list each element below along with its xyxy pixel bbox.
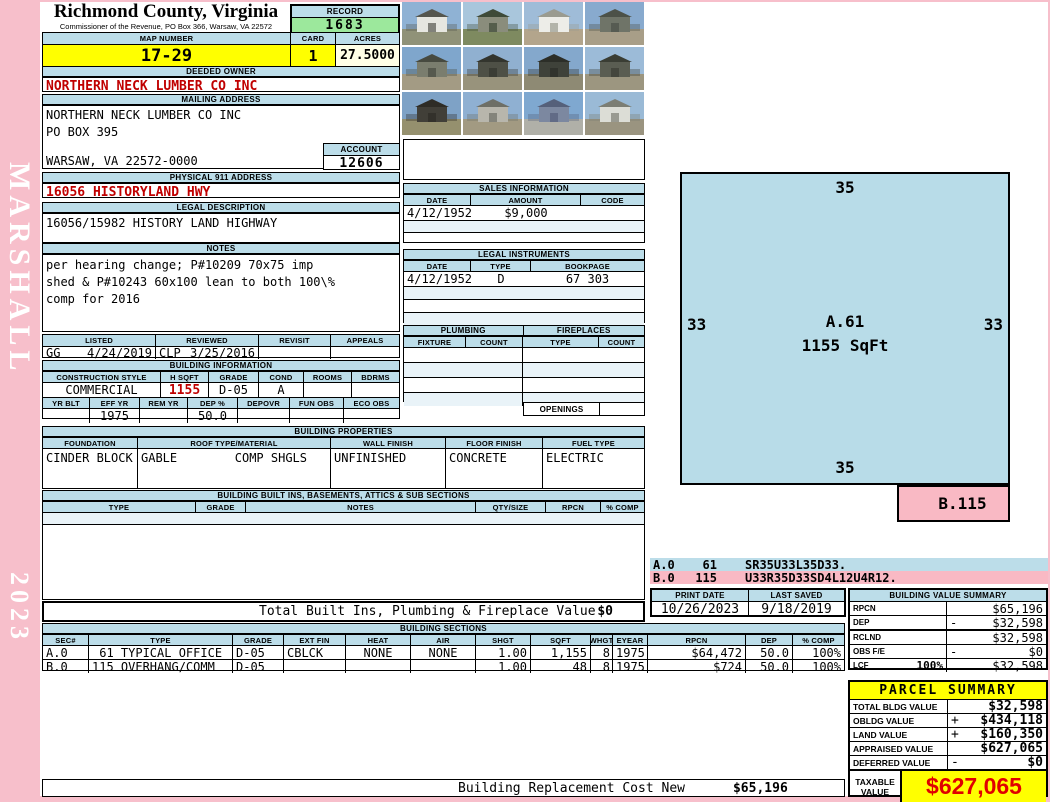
- property-photo: [524, 2, 583, 45]
- col-header: DEP: [746, 635, 793, 645]
- last-saved-header: LAST SAVED: [749, 590, 844, 601]
- ps-label: OBLDG VALUE: [850, 714, 948, 727]
- sqft-cell: 1,155: [531, 646, 591, 659]
- instrument-type: D: [471, 272, 531, 286]
- parcel-summary-header: PARCEL SUMMARY: [850, 682, 1046, 700]
- plumbing-fireplaces-table: FIXTURE COUNT TYPE COUNT: [403, 336, 645, 402]
- rpcn-cell: $64,472: [648, 646, 746, 659]
- sketch-dim-top: 35: [835, 178, 854, 197]
- review-table: LISTED REVIEWED REVISIT APPEALS GG 4/24/…: [42, 334, 400, 358]
- revisit-value: [259, 347, 331, 359]
- property-photo: [585, 92, 644, 135]
- property-record-card: { "county": { "title": "Richmond County,…: [0, 0, 1050, 800]
- vector-path: U33R35D33SD4L12U4R12.: [745, 571, 897, 585]
- legal-description-header: LEGAL DESCRIPTION: [42, 202, 400, 213]
- sales-information-table: DATE AMOUNT CODE 4/12/1952 $9,000: [403, 194, 645, 243]
- sales-empty-row: [404, 233, 644, 244]
- value-summary-row: RCLND $32,598: [850, 631, 1046, 645]
- grade-value: D-05: [209, 383, 259, 397]
- card-header: CARD: [291, 33, 336, 44]
- value-summary-row: LCF 100% $32,598: [850, 659, 1046, 672]
- acres-header: ACRES: [336, 33, 399, 44]
- col-header: GRADE: [209, 372, 259, 382]
- col-header: COND: [259, 372, 304, 382]
- legal-instruments-table: DATE TYPE BOOKPAGE 4/12/1952 D 67 303: [403, 260, 645, 323]
- col-header: FUEL TYPE: [543, 438, 644, 448]
- foundation-value: CINDER BLOCK: [43, 449, 138, 489]
- building-properties-table: FOUNDATION ROOF TYPE/MATERIAL WALL FINIS…: [42, 437, 645, 489]
- ecoobs-value: [344, 409, 399, 423]
- rpcn-cell: $724: [648, 660, 746, 673]
- ps-op: +: [951, 714, 959, 727]
- physical-address-value: 16056 HISTORYLAND HWY: [42, 183, 400, 198]
- vs-value: $0: [1029, 645, 1043, 658]
- card-value: 1: [291, 45, 336, 66]
- col-header: ECO OBS: [344, 398, 399, 408]
- property-photo: [463, 47, 522, 90]
- building-sections-table: SEC# TYPE GRADE EXT FIN HEAT AIR SHGT SQ…: [42, 634, 845, 671]
- sketch-dim-left: 33: [687, 315, 706, 334]
- whgt-cell: 8: [591, 646, 613, 659]
- col-header: AMOUNT: [471, 195, 581, 205]
- appeals-value: [331, 347, 399, 359]
- fuel-type-value: ELECTRIC: [543, 449, 644, 489]
- depovr-value: [238, 409, 290, 423]
- parcel-summary-row: TOTAL BLDG VALUE $32,598: [850, 700, 1046, 714]
- openings-label: OPENINGS: [523, 402, 600, 416]
- ps-label: DEFERRED VALUE: [850, 756, 948, 769]
- col-header: SHGT: [476, 635, 531, 645]
- instrument-bookpage: 67 303: [531, 272, 644, 286]
- col-header: FUN OBS: [290, 398, 344, 408]
- building-properties-header: BUILDING PROPERTIES: [42, 426, 645, 437]
- listed-by: GG: [46, 347, 60, 359]
- sketch-sqft-label: 1155 SqFt: [802, 336, 889, 355]
- print-date-value: 10/26/2023: [652, 602, 749, 616]
- remyr-value: [140, 409, 188, 423]
- cond-value: A: [259, 383, 304, 397]
- appeals-header: APPEALS: [331, 335, 399, 346]
- reviewed-date: 3/25/2016: [190, 347, 255, 359]
- total-built-ins-line: Total Built Ins, Plumbing & Fireplace Va…: [42, 601, 645, 622]
- replacement-cost-label: Building Replacement Cost New: [458, 781, 685, 796]
- col-header: BDRMS: [352, 372, 399, 382]
- col-header: WALL FINISH: [331, 438, 446, 448]
- vector-row-b: B.0 115 U33R35D33SD4L12U4R12.: [650, 571, 1048, 584]
- sketch-dim-right: 33: [984, 315, 1003, 334]
- record-box: RECORD 1683: [290, 4, 400, 32]
- sec-cell: B.0: [43, 660, 89, 673]
- comp-cell: 100%: [793, 660, 844, 673]
- col-header: RPCN: [648, 635, 746, 645]
- county-title: Richmond County, Virginia: [42, 2, 290, 22]
- vs-label: DEP: [853, 618, 869, 627]
- instrument-empty-row: [404, 313, 644, 325]
- map-number-header: MAP NUMBER: [43, 33, 291, 44]
- eyear-cell: 1975: [613, 660, 648, 673]
- county-subtitle: Commissioner of the Revenue, PO Box 366,…: [42, 22, 290, 31]
- record-card-document: Richmond County, Virginia Commissioner o…: [40, 2, 1048, 796]
- type-cell: 61 TYPICAL OFFICE: [89, 646, 233, 659]
- col-header: YR BLT: [43, 398, 90, 408]
- hsqft-value: 1155: [161, 383, 209, 397]
- listed-value: GG 4/24/2019: [43, 347, 156, 359]
- air-cell: [411, 660, 476, 673]
- ps-value: $0: [1027, 756, 1043, 769]
- property-photo: [402, 47, 461, 90]
- floor-finish-value: CONCRETE: [446, 449, 543, 489]
- ps-value: $627,065: [980, 742, 1043, 755]
- value-summary-row: RPCN $65,196: [850, 602, 1046, 616]
- col-header: SQFT: [531, 635, 591, 645]
- col-header: EFF YR: [90, 398, 140, 408]
- total-built-ins-label: Total Built Ins, Plumbing & Fireplace Va…: [259, 604, 596, 619]
- ps-op: +: [951, 728, 959, 741]
- col-header: NOTES: [246, 502, 476, 512]
- taxable-value-row: TAXABLE VALUE $627,065: [850, 771, 1046, 802]
- sales-information-header: SALES INFORMATION: [403, 183, 645, 194]
- rooms-value: [304, 383, 352, 397]
- whgt-cell: 8: [591, 660, 613, 673]
- building-section-row: A.0 61 TYPICAL OFFICE D-05 CBLCK NONE NO…: [43, 645, 844, 659]
- sales-row: 4/12/1952 $9,000: [404, 205, 644, 221]
- property-photo: [463, 92, 522, 135]
- dep-cell: 50.0: [746, 646, 793, 659]
- col-header: GRADE: [196, 502, 246, 512]
- map-number-value: 17-29: [43, 45, 291, 66]
- col-header: % COMP: [793, 635, 844, 645]
- col-header: AIR: [411, 635, 476, 645]
- funobs-value: [290, 409, 344, 423]
- deeded-owner-value: NORTHERN NECK LUMBER CO INC: [42, 77, 400, 92]
- sales-empty-row: [404, 221, 644, 233]
- vector-sec: B.0: [650, 571, 687, 585]
- vector-sec: A.0: [650, 558, 687, 572]
- mailing-address-header: MAILING ADDRESS: [42, 94, 400, 105]
- parcel-summary: PARCEL SUMMARY TOTAL BLDG VALUE $32,598 …: [848, 680, 1048, 797]
- reviewed-header: REVIEWED: [156, 335, 259, 346]
- photo-grid: [402, 2, 646, 136]
- parcel-summary-row: DEFERRED VALUE - $0: [850, 756, 1046, 771]
- instrument-empty-row: [404, 287, 644, 300]
- instrument-row: 4/12/1952 D 67 303: [404, 271, 644, 287]
- ps-label: APPRAISED VALUE: [850, 742, 948, 755]
- property-photo: [585, 47, 644, 90]
- col-header: ROOMS: [304, 372, 352, 382]
- vs-label: LCF: [853, 661, 869, 670]
- sale-code: [581, 206, 644, 220]
- dep-pct-value: 50.0: [188, 409, 238, 423]
- legal-description-value: 16056/15982 HISTORY LAND HIGHWAY: [42, 213, 400, 243]
- col-header: DATE: [404, 195, 471, 205]
- wall-finish-value: UNFINISHED: [331, 449, 446, 489]
- property-photo: [402, 92, 461, 135]
- replacement-cost-line: Building Replacement Cost New $65,196: [42, 779, 845, 797]
- mailing-line3: WARSAW, VA 22572-0000: [46, 154, 198, 168]
- heat-cell: NONE: [346, 646, 411, 659]
- vs-pct: 100%: [917, 659, 944, 672]
- building-sections-header: BUILDING SECTIONS: [42, 623, 845, 634]
- col-header: HEAT: [346, 635, 411, 645]
- fixture-empty-row: [404, 362, 644, 377]
- eyear-cell: 1975: [613, 646, 648, 659]
- ps-value: $32,598: [988, 700, 1043, 713]
- property-photo: [585, 2, 644, 45]
- ps-label: LAND VALUE: [850, 728, 948, 741]
- legal-instruments-header: LEGAL INSTRUMENTS: [403, 249, 645, 260]
- reviewed-by: CLP: [159, 347, 181, 359]
- deeded-owner-header: DEEDED OWNER: [42, 66, 400, 77]
- col-header: BOOKPAGE: [531, 261, 644, 271]
- sketch-b-label: B.115: [938, 494, 986, 513]
- vs-label: RPCN: [853, 604, 876, 613]
- built-ins-empty-row: [43, 512, 644, 525]
- account-box: ACCOUNT 12606: [323, 143, 400, 170]
- col-header: TYPE: [89, 635, 233, 645]
- col-header: DATE: [404, 261, 471, 271]
- sketch-section-label: A.61: [826, 312, 865, 331]
- bdrms-value: [352, 383, 399, 397]
- sale-date: 4/12/1952: [404, 206, 471, 220]
- last-saved-value: 9/18/2019: [749, 602, 844, 616]
- ps-op: -: [951, 756, 959, 769]
- shgt-cell: 1.00: [476, 660, 531, 673]
- building-information-header: BUILDING INFORMATION: [42, 360, 400, 371]
- roof-material: COMP SHGLS: [235, 451, 307, 465]
- air-cell: NONE: [411, 646, 476, 659]
- notes-line: per hearing change; P#10209 70x75 imp: [46, 258, 313, 272]
- grade-cell: D-05: [233, 646, 284, 659]
- parcel-summary-row: APPRAISED VALUE $627,065: [850, 742, 1046, 756]
- col-header: EYEAR: [613, 635, 648, 645]
- col-header: DEPOVR: [238, 398, 290, 408]
- sidebar-vertical-year: 2023: [4, 572, 34, 644]
- fireplaces-header: FIREPLACES: [524, 325, 645, 336]
- sketch-dim-bottom: 35: [835, 458, 854, 477]
- parcel-summary-row: LAND VALUE + $160,350: [850, 728, 1046, 742]
- instrument-empty-row: [404, 300, 644, 313]
- built-ins-header: BUILDING BUILT INS, BASEMENTS, ATTICS & …: [42, 490, 645, 501]
- fixture-empty-row: [404, 377, 644, 392]
- taxable-value-label: TAXABLE VALUE: [850, 771, 902, 802]
- building-section-row: B.0 115 OVERHANG/COMM D-05 1.00 48 8 197…: [43, 659, 844, 673]
- openings-value: [600, 402, 645, 416]
- property-photo: [402, 2, 461, 45]
- vector-num: 61: [687, 558, 717, 572]
- extfin-cell: [284, 660, 346, 673]
- vs-value: $65,196: [992, 602, 1043, 615]
- acres-value: 27.5000: [336, 45, 399, 66]
- listed-header: LISTED: [43, 335, 156, 346]
- vs-label: OBS F/E: [853, 647, 885, 656]
- vs-label: RCLND: [853, 633, 881, 642]
- col-header: CONSTRUCTION STYLE: [43, 372, 161, 382]
- roof-value: GABLE COMP SHGLS: [138, 449, 331, 489]
- total-built-ins-value: $0: [597, 604, 613, 619]
- sale-amount: $9,000: [471, 206, 581, 220]
- instrument-date: 4/12/1952: [404, 272, 471, 286]
- col-header: EXT FIN: [284, 635, 346, 645]
- record-label: RECORD: [292, 6, 398, 18]
- vs-op: -: [950, 645, 957, 658]
- notes-header: NOTES: [42, 243, 400, 254]
- account-value: 12606: [324, 156, 399, 170]
- comp-cell: 100%: [793, 646, 844, 659]
- col-header: WHGT: [591, 635, 613, 645]
- construction-style-value: COMMERCIAL: [43, 383, 161, 397]
- col-header: GRADE: [233, 635, 284, 645]
- building-value-summary-header: BUILDING VALUE SUMMARY: [850, 590, 1046, 602]
- col-header: % COMP: [601, 502, 644, 512]
- print-date-header: PRINT DATE: [652, 590, 749, 601]
- plumbing-header: PLUMBING: [403, 325, 524, 336]
- photo-spacer-box: [403, 139, 645, 180]
- col-header: CODE: [581, 195, 644, 205]
- notes-line: comp for 2016: [46, 292, 140, 306]
- col-header: ROOF TYPE/MATERIAL: [138, 438, 331, 448]
- col-header: SEC#: [43, 635, 89, 645]
- col-header: TYPE: [43, 502, 196, 512]
- col-header: DEP %: [188, 398, 238, 408]
- physical-address-header: PHYSICAL 911 ADDRESS: [42, 172, 400, 183]
- effyr-value: 1975: [90, 409, 140, 423]
- record-value: 1683: [292, 18, 398, 33]
- col-header: TYPE: [523, 337, 599, 347]
- reviewed-value: CLP 3/25/2016: [156, 347, 259, 359]
- col-header: RPCN: [546, 502, 601, 512]
- parcel-summary-row: OBLDG VALUE + $434,118: [850, 714, 1046, 728]
- map-card-acres-table: MAP NUMBER CARD ACRES 17-29 1 27.5000: [42, 32, 400, 66]
- notes-box: per hearing change; P#10209 70x75 imp sh…: [42, 254, 400, 332]
- value-summary-row: DEP - $32,598: [850, 616, 1046, 631]
- yrblt-value: [43, 409, 90, 423]
- col-header: H SQFT: [161, 372, 209, 382]
- ps-value: $160,350: [980, 728, 1043, 741]
- col-header: TYPE: [471, 261, 531, 271]
- mailing-line2: PO BOX 395: [46, 125, 118, 139]
- fixture-empty-row: [404, 347, 644, 362]
- mailing-line1: NORTHERN NECK LUMBER CO INC: [46, 108, 241, 122]
- built-ins-table: TYPE GRADE NOTES QTY/SIZE RPCN % COMP: [42, 501, 645, 600]
- county-header: Richmond County, Virginia Commissioner o…: [42, 2, 290, 32]
- extfin-cell: CBLCK: [284, 646, 346, 659]
- vs-op: -: [950, 616, 957, 629]
- sec-cell: A.0: [43, 646, 89, 659]
- listed-date: 4/24/2019: [87, 347, 152, 359]
- heat-cell: [346, 660, 411, 673]
- vector-path: SR35U33L35D33.: [745, 558, 846, 572]
- ps-value: $434,118: [980, 714, 1043, 727]
- openings-row: OPENINGS: [523, 402, 645, 416]
- type-cell: 115 OVERHANG/COMM: [89, 660, 233, 673]
- sqft-cell: 48: [531, 660, 591, 673]
- col-header: REM YR: [140, 398, 188, 408]
- print-info-table: PRINT DATE LAST SAVED 10/26/2023 9/18/20…: [650, 588, 846, 617]
- replacement-cost-value: $65,196: [733, 781, 788, 796]
- sidebar-vertical-name: MARSHALL: [2, 162, 36, 375]
- vs-value: $32,598: [992, 659, 1043, 672]
- vector-row-a: A.0 61 SR35U33L35D33.: [650, 558, 1048, 571]
- vs-value: $32,598: [992, 631, 1043, 644]
- col-header: FIXTURE: [404, 337, 466, 347]
- building-value-summary: BUILDING VALUE SUMMARY RPCN $65,196 DEP …: [848, 588, 1048, 670]
- property-photo: [524, 92, 583, 135]
- dep-cell: 50.0: [746, 660, 793, 673]
- roof-type: GABLE: [141, 451, 177, 465]
- plumbing-fireplaces-headers: PLUMBING FIREPLACES: [403, 325, 645, 336]
- vs-value: $32,598: [992, 616, 1043, 629]
- property-photo: [524, 47, 583, 90]
- col-header: FOUNDATION: [43, 438, 138, 448]
- col-header: QTY/SIZE: [476, 502, 546, 512]
- property-photo: [463, 2, 522, 45]
- building-information-table: CONSTRUCTION STYLE H SQFT GRADE COND ROO…: [42, 371, 400, 419]
- taxable-value-amount: $627,065: [902, 771, 1046, 802]
- value-summary-row: OBS F/E - $0: [850, 645, 1046, 659]
- vector-num: 115: [687, 571, 717, 585]
- shgt-cell: 1.00: [476, 646, 531, 659]
- col-header: COUNT: [466, 337, 523, 347]
- grade-cell: D-05: [233, 660, 284, 673]
- notes-line: shed & P#10243 60x100 lean to both 100\%: [46, 275, 335, 289]
- col-header: FLOOR FINISH: [446, 438, 543, 448]
- revisit-header: REVISIT: [259, 335, 331, 346]
- building-sketch-section-a: 35 33 33 A.61 1155 SqFt 35: [680, 172, 1010, 485]
- col-header: COUNT: [599, 337, 644, 347]
- building-sketch-section-b: B.115: [897, 485, 1010, 522]
- ps-label: TOTAL BLDG VALUE: [850, 700, 948, 713]
- account-label: ACCOUNT: [324, 144, 399, 156]
- mailing-address-box: NORTHERN NECK LUMBER CO INC PO BOX 395 W…: [42, 105, 400, 169]
